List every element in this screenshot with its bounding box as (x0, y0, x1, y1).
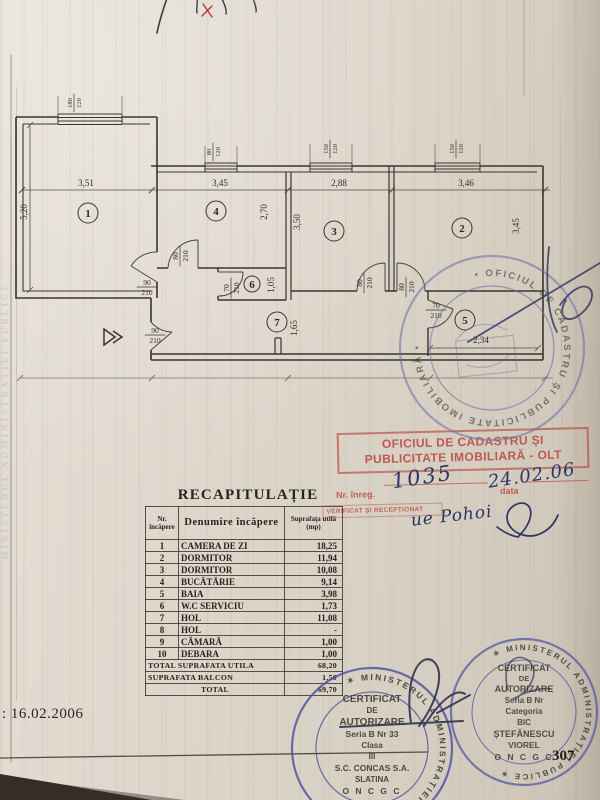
svg-text:210: 210 (365, 277, 374, 289)
svg-text:120: 120 (76, 98, 83, 108)
svg-text:210: 210 (181, 250, 190, 262)
window-symbols (58, 96, 480, 172)
photo-corner-dark (0, 774, 152, 800)
door-label-room4: 80210 (171, 246, 190, 266)
red-check-mark (202, 4, 212, 17)
dim-room4-height: 2,70 (259, 204, 269, 220)
svg-text:70: 70 (432, 301, 440, 310)
window-label-room4: 80120 (206, 143, 222, 161)
col-header-nr: Nr. încăpere (146, 507, 179, 540)
top-pen-marks (157, 0, 256, 33)
room-number-4: 4 (206, 201, 226, 221)
door-label-room5: 70210 (426, 301, 446, 320)
table-row: 4BUCĂTĂRIE9,14 (146, 576, 343, 588)
horizontal-rule (0, 752, 428, 758)
svg-text:4: 4 (213, 206, 219, 218)
dim-room2-width: 3,46 (458, 178, 474, 188)
dim-room3-width: 2,88 (331, 178, 347, 188)
svg-text:90: 90 (151, 326, 159, 335)
registration-number-label: Nr. înreg. (336, 489, 375, 500)
window-label-room2: 150120 (449, 140, 465, 158)
svg-text:70: 70 (222, 284, 231, 292)
svg-text:210: 210 (149, 336, 161, 345)
table-row: 7HOL11,08 (146, 612, 343, 624)
balcony-area-row: SUPRAFATA BALCON1,50 (146, 672, 343, 684)
svg-text:120: 120 (458, 144, 465, 154)
table-row: 3DORMITOR10,08 (146, 564, 343, 576)
recapitulation-section: RECAPITULAȚIE Nr. încăpere Denumire încă… (145, 487, 343, 696)
registry-stamp: OFICIUL DE CADASTRU ȘI PUBLICITATE IMOBI… (329, 427, 598, 551)
svg-text:80: 80 (397, 283, 406, 291)
svg-text:210: 210 (232, 282, 241, 294)
grand-total-row: TOTAL69,70 (146, 684, 343, 696)
door-label-room2: 80210 (397, 277, 416, 297)
table-title: RECAPITULAȚIE (153, 487, 343, 504)
room-number-6: 6 (244, 276, 260, 292)
dim-room4-width: 3,45 (212, 178, 228, 188)
page-number: 307 (552, 748, 575, 765)
col-header-name: Denumire încăpere (179, 507, 285, 540)
svg-text:3: 3 (331, 226, 337, 238)
door-label-entry: 90210 (145, 326, 165, 345)
room-number-3: 3 (324, 221, 344, 241)
svg-text:150: 150 (449, 144, 456, 154)
dim-room1-width: 3,51 (78, 178, 94, 188)
room-number-7: 7 (267, 312, 287, 332)
table-row: 1CAMERA DE ZI18,25 (146, 540, 343, 552)
dim-room5-width: 2,34 (473, 335, 489, 345)
entrance-arrow-icon (104, 329, 122, 345)
dim-room6-height: 1,05 (266, 277, 276, 293)
svg-text:210: 210 (430, 311, 442, 320)
scanned-cadastral-document: MINISTERUL ADMINISTRAȚIEI PUBLICE (0, 0, 600, 800)
window-label-room1: 180120 (67, 94, 83, 112)
svg-text:6: 6 (249, 279, 255, 291)
svg-text:180: 180 (67, 98, 74, 108)
svg-text:80: 80 (206, 149, 213, 156)
svg-text:150: 150 (323, 144, 330, 154)
dim-room3-height: 3,50 (292, 214, 302, 230)
bottom-left-date: : 16.02.2006 (2, 706, 83, 723)
svg-text:210: 210 (141, 288, 153, 297)
svg-text:2: 2 (459, 223, 465, 235)
window-size-labels: 180120 80120 150120 150120 (67, 94, 465, 161)
svg-text:210: 210 (407, 281, 416, 293)
dim-room7-height: 1,65 (289, 320, 299, 336)
table-row: 10DEBARA1,00 (146, 648, 343, 660)
room-numbers: 1 4 3 2 6 7 5 (78, 201, 475, 332)
svg-text:7: 7 (274, 317, 280, 329)
table-row: 6W.C SERVICIU1,73 (146, 600, 343, 612)
table-row: 5BAIA3,98 (146, 588, 343, 600)
svg-text:5: 5 (462, 315, 468, 327)
door-label-room1: 90210 (137, 278, 157, 297)
room-number-2: 2 (452, 218, 472, 238)
svg-text:120: 120 (215, 147, 222, 157)
svg-text:120: 120 (332, 144, 339, 154)
svg-text:1: 1 (85, 208, 91, 220)
dim-room2-height: 3,45 (511, 218, 521, 234)
window-label-room3: 150120 (323, 140, 339, 158)
bleed-through-text: MINISTERUL ADMINISTRAȚIEI PUBLICE (0, 281, 11, 560)
door-label-room3: 80210 (355, 273, 374, 293)
recapitulation-table: Nr. încăpere Denumire încăpere Suprafața… (145, 506, 343, 696)
svg-text:80: 80 (171, 252, 180, 260)
room-number-5: 5 (455, 310, 475, 330)
table-row: 9CĂMARĂ1,00 (146, 636, 343, 648)
room-number-1: 1 (78, 203, 98, 223)
table-row: 8HOL- (146, 624, 343, 636)
total-useful-area-row: TOTAL SUPRAFATA UTILA68,20 (146, 660, 343, 672)
dim-room1-height: 5,20 (19, 204, 29, 220)
dimension-labels: 3,51 3,45 2,88 3,46 5,20 2,70 3,50 3,45 … (19, 178, 521, 345)
table-row: 2DORMITOR11,94 (146, 552, 343, 564)
svg-text:90: 90 (143, 278, 151, 287)
svg-text:80: 80 (355, 279, 364, 287)
